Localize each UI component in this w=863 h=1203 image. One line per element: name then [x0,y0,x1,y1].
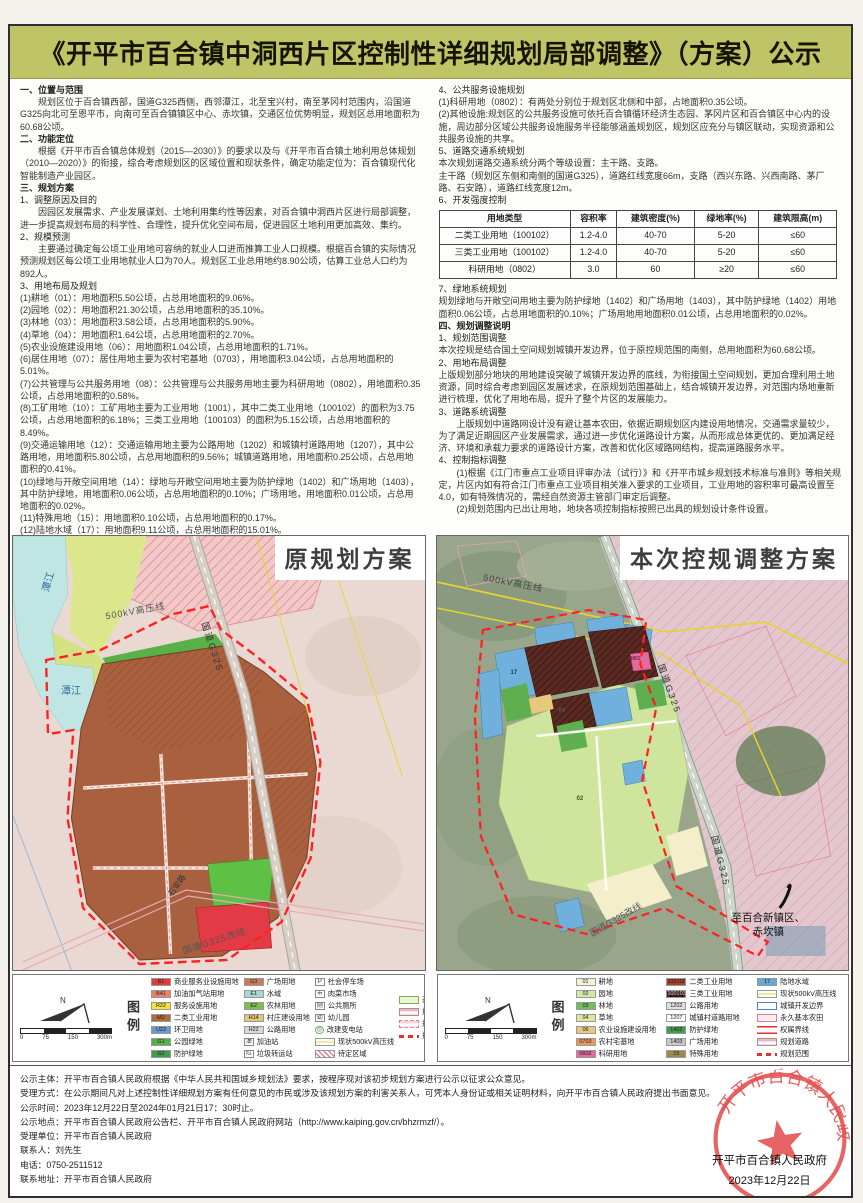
text-line: 2、规模预测 [20,231,423,243]
legend-item-label: 规划范围 [422,1031,424,1041]
text-columns: 一、位置与范围规划区位于百合镇西部，国道G325西侧，西邻潭江，北至宝兴村，南至… [10,79,851,535]
text-line: 7、绿地系统规划 [439,283,842,295]
legend-swatch: 04 [576,1014,596,1022]
legend-swatch: 06 [576,1026,596,1034]
legend-item-label: 草地 [599,1013,613,1023]
text-line: 3、道路系统调整 [439,406,842,418]
text-line: 6、开发强度控制 [439,194,842,206]
legend-item-label: 现状500kV高压线 [780,989,836,999]
legend-item-label: 农林用地 [267,1001,296,1011]
text-line: (1)科研用地（0802）：有两处分别位于规划区北侧和中部，占地面积0.35公顷… [439,96,842,108]
table-cell: 60 [617,262,694,279]
legend-item: M2 二类工业用地 [151,1013,239,1023]
legend-item: G1 公园绿地 [151,1037,239,1047]
page-title: 《开平市百合镇中洞西片区控制性详细规划局部调整》（方案）公示 [39,34,821,71]
text-line: 主要通过确定每公顷工业用地可容纳的就业人口进而推算工业人口规模。根据百合镇的实际… [20,243,423,280]
legend-swatch [399,996,419,1004]
text-line: 主干路（规划区东侧和南侧的国道G325），道路红线宽度66m，支路（西兴东路、兴… [439,170,842,194]
parcel-code: 0802 [630,656,641,662]
legend-swatch: 市 [315,990,325,998]
legend-item-label: 农村宅基地 [599,1037,635,1047]
legend-item: 1403 广场用地 [666,1037,752,1047]
text-line: 上版规划部分地块的用地建设突破了城镇开发边界的底线，为衔接国土空间规划，更加合理… [439,369,842,406]
maps-row: 潭江 潭江 500kV高压线 国道G325 石安路 国道G325改线 原规划方案 [10,535,851,971]
legend-item: 100102 二类工业用地 [666,977,752,987]
legend-swatch: E1 [244,990,264,998]
text-line: 规划绿地与开敞空间用地主要为防护绿地（1402）和广场用地（1403），其中防护… [439,295,842,319]
legend-swatch: 01 [576,978,596,986]
to-chikan-label: 至百合新镇区、 赤坎镇 [732,912,806,939]
legend-item: H14 村庄建设用地 [244,1013,310,1023]
scale-bar-segments [20,1028,112,1034]
table-cell: 1.2-4.0 [570,228,617,245]
legend-swatch: G2 [151,1050,171,1058]
legend-swatch [757,1026,777,1034]
table-header-row: 用地类型容积率建筑密度(%)绿地率(%)建筑限高(m) [439,211,836,228]
legend-item: H22 公路用地 [244,1025,310,1035]
legend-item-label: 广场用地 [689,1037,718,1047]
text-line: (11)特殊用地（15）：用地面积0.10公顷，占总用地面积的0.17%。 [20,512,423,524]
legend-swatch: 100102 [666,978,686,986]
tanjiang-river-label: 潭江 [61,682,81,697]
table-cell: 科研用地（0802） [439,262,570,279]
legend-item: B1 商业服务业设施用地 [151,977,239,987]
legend-column: B1 商业服务业设施用地 B41 加油加气站用地 R22 服务设施用地 M2 二… [151,977,239,1059]
legend-item: E1 水域 [244,989,310,999]
legend-item: B41 加油加气站用地 [151,989,239,999]
footer: 公示主体：开平市百合镇人民政府根据《中华人民共和国城乡规划法》要求，按程序现对该… [10,1065,851,1197]
scale-bar-labels: 075150300m [445,1035,537,1041]
legend-swatch [315,1038,335,1046]
legend-item-label: 永久基本农田 [780,1013,823,1023]
text-line: 2、用地布局调整 [439,357,842,369]
legend-column: G3 广场用地 E1 水域 E2 农林用地 H14 村庄建设用地 H22 公路用… [244,977,310,1059]
signature-date: 2023年12月22日 [712,1173,827,1191]
legend-swatch: G1 [151,1038,171,1046]
left-text-column: 一、位置与范围规划区位于百合镇西部，国道G325西侧，西邻潭江，北至宝兴村，南至… [20,84,423,535]
legend-swatch: E2 [244,1002,264,1010]
legend-item: 城镇开发边界 [757,1001,843,1011]
legend-item: 厕 公共厕所 [315,1001,394,1011]
table-cell: ≤60 [759,245,836,262]
legend-swatch: H22 [244,1026,264,1034]
table-cell: 二类工业用地（100102） [439,228,570,245]
legend-item: 规划城市道路 [399,1007,424,1017]
legend-item-label: 农业设施建设用地 [599,1025,657,1035]
text-line: 1、调整原因及目的 [20,194,423,206]
legend-item-label: 耕地 [599,977,613,987]
legend-item-label: 幼儿园 [328,1013,350,1023]
legend-item: 06 农业设施建设用地 [576,1025,662,1035]
parcel-code: 04 [559,708,566,714]
legend-item-label: 加油加气站用地 [174,989,224,999]
legend-item: 现状500kV高压线 [315,1037,394,1047]
legend-item-label: 防护绿地 [174,1049,203,1059]
legend-item-label: 公共厕所 [328,1001,357,1011]
scale-tick-label: 75 [467,1035,474,1041]
text-line: (6)居住用地（07）：居住用地主要为农村宅基地（0703），用地面积3.04公… [20,353,423,377]
text-line: (10)绿地与开敞空间用地（14）：绿地与开敞空间用地主要为防护绿地（1402）… [20,476,423,513]
table-header-cell: 用地类型 [439,211,570,228]
legend-item-label: 三类工业用地 [689,989,732,999]
legend-item: 规划范围 [757,1049,843,1059]
legend-swatch: 15 [666,1050,686,1058]
legend-item: 1207 城镇村道路用地 [666,1013,752,1023]
text-line: (7)公共管理与公共服务用地（08）：公共管理与公共服务用地主要为科研用地（08… [20,378,423,402]
original-plan-map-graphic [13,536,425,970]
legend-swatch: 油 [244,1038,254,1046]
footer-line: 受理方式：在公示期间凡对上述控制性详细规划方案有任何意见的市民或涉及该规划方案的… [20,1086,841,1100]
legend-item-label: 规划城市道路 [422,1007,424,1017]
table-header-cell: 建筑密度(%) [617,211,694,228]
legend-tools: N 075150300m [18,995,114,1041]
footer-line: 公示主体：开平市百合镇人民政府根据《中华人民共和国城乡规划法》要求，按程序现对该… [20,1072,841,1086]
legend-swatch [399,1008,419,1016]
legend-swatch: 17 [757,978,777,986]
parcel-code: 17 [511,670,518,676]
legend-item: G3 广场用地 [244,977,310,987]
legend-swatch: 垃 [244,1050,254,1058]
legend-item: 100103 三类工业用地 [666,989,752,999]
legend-title: 图例 [548,1000,567,1036]
notice-sheet: 《开平市百合镇中洞西片区控制性详细规划局部调整》（方案）公示 一、位置与范围规划… [8,24,853,1198]
title-band: 《开平市百合镇中洞西片区控制性详细规划局部调整》（方案）公示 [10,26,851,79]
scale-tick-label: 0 [445,1035,448,1041]
text-line: (8)工矿用地（10）：工矿用地主要为工业用地（1001），其中二类工业用地（1… [20,402,423,439]
to-chikan-line2: 赤坎镇 [732,926,806,940]
legend-item: 15 特殊用地 [666,1049,752,1059]
legend-title: 图例 [123,1000,142,1036]
legend-column: 01 耕地 02 园地 03 林地 04 草地 06 农业设施建设用地 [576,977,662,1059]
footer-line: 受理单位：开平市百合镇人民政府 [20,1129,841,1143]
right-text-column: 4、公共服务设施规划(1)科研用地（0802）：有两处分别位于规划区北侧和中部，… [439,84,842,535]
text-line: 4、控制指标调整 [439,454,842,466]
legend-item: 垃 垃圾转运站 [244,1049,310,1059]
legend-swatch: ◎ [315,1026,324,1034]
legend-swatch: 厕 [315,1002,325,1010]
legend-item: 03 林地 [576,1001,662,1011]
right-column-top: 4、公共服务设施规划(1)科研用地（0802）：有两处分别位于规划区北侧和中部，… [439,84,842,206]
table-cell: ≤60 [759,262,836,279]
legend-item: 规划范围 [399,1031,424,1041]
legend-swatch: 1403 [666,1038,686,1046]
legend-item: R22 服务设施用地 [151,1001,239,1011]
adjusted-plan-map: 至恩平市 500kV高压线 国道G325 国道G325 国道G325改线 至百合… [436,535,850,971]
text-line: 规划区位于百合镇西部，国道G325西侧，西邻潭江，北至宝兴村，南至茅冈村范围内，… [20,96,423,133]
legend-swatch: R22 [151,1002,171,1010]
text-line: 4、公共服务设施规划 [439,84,842,96]
legend-item-label: 权属界线 [780,1025,809,1035]
legend-columns: B1 商业服务业设施用地 B41 加油加气站用地 R22 服务设施用地 M2 二… [151,977,425,1059]
legend-item-label: 水域 [267,989,281,999]
text-line: (2)其他设施:规划区的公共服务设施可依托百合镇循环经济生态园、茅冈片区和百合镇… [439,108,842,145]
development-intensity-table: 用地类型容积率建筑密度(%)绿地率(%)建筑限高(m) 二类工业用地（10010… [439,210,837,279]
legend-swatch: M2 [151,1014,171,1022]
legend-item: 权属界线 [757,1025,843,1035]
legend-item: 0703 农村宅基地 [576,1037,662,1047]
table-header-cell: 建筑限高(m) [759,211,836,228]
legend-item-label: 现状500kV高压线 [338,1037,394,1047]
table-cell: 5-20 [694,228,759,245]
legend-item-label: 规划范围 [780,1049,809,1059]
legend-item-label: 公路用地 [689,1001,718,1011]
legend-item-label: 公园绿地 [174,1037,203,1047]
original-plan-map: 潭江 潭江 500kV高压线 国道G325 石安路 国道G325改线 原规划方案 [12,535,426,971]
text-line: (5)农业设施建设用地（06）：用地面积1.04公顷，占总用地面积的1.71%。 [20,341,423,353]
legend-swatch: B1 [151,978,171,986]
table-row: 三类工业用地（100102） 1.2-4.0 40-70 5-20 ≤60 [439,245,836,262]
legend-columns: 01 耕地 02 园地 03 林地 04 草地 06 农业设施建设用地 [576,977,844,1059]
scale-bar: 075150300m [445,1028,537,1041]
text-line: 5、道路交通系统规划 [439,145,842,157]
legend-item-label: 特殊用地 [689,1049,718,1059]
text-line: (2)园地（02）：用地面积21.30公顷，占总用地面积的35.10%。 [20,304,423,316]
legend-item: U22 环卫用地 [151,1025,239,1035]
legend-swatch: 1207 [666,1014,686,1022]
legend-swatch [757,1038,777,1046]
adjusted-plan-map-title: 本次控规调整方案 [620,536,848,580]
legend-item: 1402 防护绿地 [666,1025,752,1035]
legend-swatch [399,1035,419,1038]
table-cell: 三类工业用地（100102） [439,245,570,262]
text-line: (1)耕地（01）：用地面积5.50公顷，占总用地面积的9.06%。 [20,292,423,304]
text-line: 1、规划范围调整 [439,332,842,344]
legend-item: P 社会停车场 [315,977,394,987]
text-line: 三、规划方案 [20,182,423,194]
legend-item-label: 陆地水域 [780,977,809,987]
legend-swatch: U22 [151,1026,171,1034]
table-header-cell: 绿地率(%) [694,211,759,228]
legend-item-label: 防护绿地 [689,1025,718,1035]
svg-text:N: N [60,996,66,1005]
scale-tick-label: 75 [42,1035,49,1041]
legend-swatch: 1402 [666,1026,686,1034]
parcel-code: 02 [577,796,584,802]
legend-item-label: 广场用地 [267,977,296,987]
legend-swatch: H14 [244,1014,264,1022]
legend-item: 01 耕地 [576,977,662,987]
legend-swatch [757,990,777,998]
legend-item: 04 草地 [576,1013,662,1023]
table-cell: 40-70 [617,228,694,245]
north-arrow-icon: N [461,995,521,1025]
legend-item: ◎ 改建变电站 [315,1025,394,1035]
table-cell: ≥20 [694,262,759,279]
text-line: 四、规划调整说明 [439,320,842,332]
legend-item-label: 规划道路 [780,1037,809,1047]
legend-item-label: 公路用地 [267,1025,296,1035]
legend-item-label: 垃圾转运站 [257,1049,293,1059]
text-line: (12)陆地水域（17）：用地面积9.11公顷，占总用地面积的15.01%。 [20,524,423,535]
legend-item-label: 村庄建设用地 [267,1013,310,1023]
scale-bar-segments [445,1028,537,1034]
to-chikan-line1: 至百合新镇区、 [732,912,806,926]
legends-row: N 075150300m 图例 B1 商业服务业设施用地 B41 加油加气站用地 [10,971,851,1065]
text-line: 本次控规是结合国土空间规划城镇开发边界，位于原控规范围的南侧，总用地面积为60.… [439,344,842,356]
table-cell: 5-20 [694,245,759,262]
legend-item: 幼 幼儿园 [315,1013,394,1023]
legend-column: 基本农田 规划城市道路 规划未定位路 规划范围 [399,977,424,1059]
legend-item-label: 环卫用地 [174,1025,203,1035]
legend-item: E2 农林用地 [244,1001,310,1011]
table-row: 二类工业用地（100102） 1.2-4.0 40-70 5-20 ≤60 [439,228,836,245]
legend-item-label: 基本农田 [422,995,424,1005]
text-line: (2)规划范围内已出让用地，地块各项控制指标按照已出具的规划设计条件设置。 [439,503,842,515]
table-header-cell: 容积率 [570,211,617,228]
scale-tick-label: 300m [521,1035,536,1041]
legend-item: 02 园地 [576,989,662,999]
legend-item-label: 城镇开发边界 [780,1001,823,1011]
legend-swatch: 02 [576,990,596,998]
legend-item: 17 陆地水域 [757,977,843,987]
footer-line: 公示地点：开平市百合镇人民政府公告栏、开平市百合镇人民政府网站（http://w… [20,1115,841,1129]
legend-item: 0802 科研用地 [576,1049,662,1059]
signature-block: 开平市百合镇人民政府 2023年12月22日 [712,1152,827,1191]
text-line: 因园区发展需求、产业发展谋划、土地利用集约性等因素，对百合镇中洞西片区进行局部调… [20,206,423,230]
original-plan-map-title: 原规划方案 [275,536,425,580]
legend-item: 永久基本农田 [757,1013,843,1023]
scale-tick-label: 150 [68,1035,78,1041]
legend-item-label: 社会停车场 [328,977,364,987]
legend-swatch: 100103 [666,990,686,998]
table-cell: 3.0 [570,262,617,279]
legend-item: 油 加油站 [244,1037,310,1047]
legend-swatch: B41 [151,990,171,998]
table-cell: 40-70 [617,245,694,262]
legend-item-label: 加油站 [257,1037,279,1047]
legend-item-label: 肉菜市场 [328,989,357,999]
legend-tools: N 075150300m [443,995,539,1041]
legend-item: 规划道路 [757,1037,843,1047]
legend-item-label: 改建变电站 [327,1025,363,1035]
scale-tick-label: 150 [492,1035,502,1041]
text-line: (4)草地（04）：用地面积1.64公顷，占总用地面积的2.70%。 [20,329,423,341]
legend-swatch: 0703 [576,1038,596,1046]
legend-swatch [399,1020,419,1028]
legend-swatch [757,1002,777,1010]
legend-item-label: 待定区域 [338,1049,367,1059]
table-cell: 1.2-4.0 [570,245,617,262]
scale-bar-labels: 075150300m [20,1035,112,1041]
text-line: (9)交通运输用地（12）：交通运输用地主要为公路用地（1202）和城镇村道路用… [20,439,423,476]
text-line: 本次规划道路交通系统分两个等级设置：主干路、支路。 [439,157,842,169]
legend-item-label: 商业服务业设施用地 [174,977,239,987]
legend-swatch: 1202 [666,1002,686,1010]
legend-item: 基本农田 [399,995,424,1005]
legend-item: G2 防护绿地 [151,1049,239,1059]
text-line: 一、位置与范围 [20,84,423,96]
text-line: 上版规划中道路网设计没有避让基本农田，依据近期规划区内建设用地情况，交通需求量较… [439,418,842,455]
legend-column: 17 陆地水域 现状500kV高压线 城镇开发边界 永久基本农田 权属界线 [757,977,843,1059]
legend-swatch [757,1053,777,1056]
adjusted-plan-legend: N 075150300m 图例 01 耕地 02 园地 [437,974,850,1062]
legend-item-label: 园地 [599,989,613,999]
text-line: 3、用地布局及规划 [20,280,423,292]
original-plan-legend: N 075150300m 图例 B1 商业服务业设施用地 B41 加油加气站用地 [12,974,425,1062]
scale-tick-label: 300m [97,1035,112,1041]
legend-item-label: 二类工业用地 [689,977,732,987]
scale-bar: 075150300m [20,1028,112,1041]
table-cell: ≤60 [759,228,836,245]
legend-item: 规划未定位路 [399,1019,424,1029]
legend-item-label: 林地 [599,1001,613,1011]
legend-column: P 社会停车场 市 肉菜市场 厕 公共厕所 幼 幼儿园 ◎ 改建变电站 [315,977,394,1059]
footer-line: 公示时间：2023年12月22日至2024年01月21日17：30时止。 [20,1101,841,1115]
legend-item: 市 肉菜市场 [315,989,394,999]
legend-item-label: 规划未定位路 [422,1019,424,1029]
legend-item-label: 二类工业用地 [174,1013,217,1023]
text-line: (3)林地（03）：用地面积3.58公顷，占总用地面积的5.90%。 [20,316,423,328]
north-arrow-icon: N [36,995,96,1025]
signature-org: 开平市百合镇人民政府 [712,1152,827,1171]
legend-swatch: G3 [244,978,264,986]
legend-item-label: 城镇村道路用地 [689,1013,739,1023]
text-line: 二、功能定位 [20,133,423,145]
legend-swatch: 03 [576,1002,596,1010]
table-body: 二类工业用地（100102） 1.2-4.0 40-70 5-20 ≤60 三类… [439,228,836,279]
legend-item-label: 服务设施用地 [174,1001,217,1011]
legend-item: 1202 公路用地 [666,1001,752,1011]
legend-column: 100102 二类工业用地 100103 三类工业用地 1202 公路用地 12… [666,977,752,1059]
text-line: 根据《开平市百合镇总体规划（2015—2030）》的要求以及与《开平市百合镇土地… [20,145,423,182]
svg-text:N: N [485,996,491,1005]
right-column-bottom: 7、绿地系统规划规划绿地与开敞空间用地主要为防护绿地（1402）和广场用地（14… [439,283,842,515]
legend-swatch [315,1050,335,1058]
legend-item-label: 科研用地 [599,1049,628,1059]
text-line: (1)根据《江门市重点工业项目评审办法（试行）》和《开平市城乡规划技术标准与准则… [439,467,842,504]
table-row: 科研用地（0802） 3.0 60 ≥20 ≤60 [439,262,836,279]
legend-swatch: 0802 [576,1050,596,1058]
scale-tick-label: 0 [20,1035,23,1041]
legend-swatch: P [315,978,325,986]
legend-swatch: 幼 [315,1014,325,1022]
legend-swatch [757,1014,777,1022]
adjusted-plan-map-graphic [437,536,849,970]
legend-item: 现状500kV高压线 [757,989,843,999]
legend-item: 待定区域 [315,1049,394,1059]
